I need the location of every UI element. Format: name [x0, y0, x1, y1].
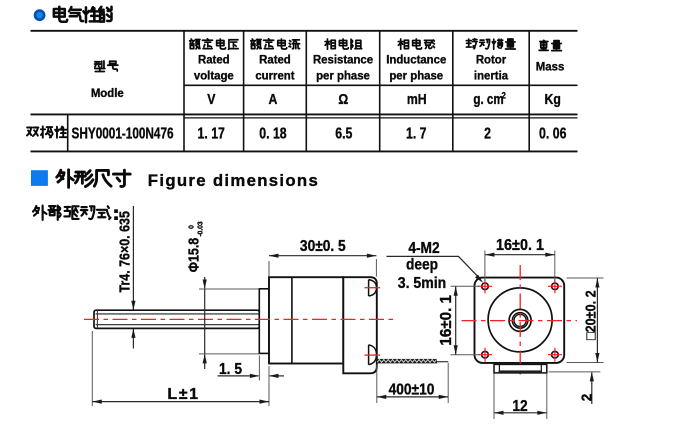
svg-text:□20±0. 2: □20±0. 2	[581, 290, 598, 340]
svg-text:16±0. 1: 16±0. 1	[496, 236, 544, 254]
svg-text:mH: mH	[407, 91, 427, 107]
svg-text:Figure dimensions: Figure dimensions	[148, 171, 319, 190]
svg-text:current: current	[255, 69, 294, 82]
svg-text:2: 2	[484, 125, 491, 143]
svg-text:Resistance: Resistance	[313, 53, 374, 66]
svg-text:6.5: 6.5	[335, 125, 352, 143]
svg-text:400±10: 400±10	[389, 380, 435, 398]
svg-text:Modle: Modle	[91, 87, 124, 100]
svg-text:1. 7: 1. 7	[406, 125, 427, 143]
svg-text:16±0. 1: 16±0. 1	[438, 295, 455, 346]
svg-text:Ω: Ω	[338, 91, 348, 107]
svg-text:0: 0	[187, 225, 195, 229]
svg-text:voltage: voltage	[194, 69, 234, 82]
svg-text:Φ15.8: Φ15.8	[186, 237, 202, 272]
svg-text:inertia: inertia	[474, 69, 509, 82]
svg-text:3. 5min: 3. 5min	[398, 274, 446, 292]
svg-text:12: 12	[512, 397, 527, 415]
svg-text:Tr4. 76×0. 635: Tr4. 76×0. 635	[117, 211, 133, 293]
svg-text:Mass: Mass	[536, 60, 565, 73]
svg-text:Rated: Rated	[198, 53, 230, 66]
svg-text:Inductance: Inductance	[386, 53, 447, 66]
svg-text:-0.03: -0.03	[196, 221, 204, 236]
svg-text:SHY0001-100N476: SHY0001-100N476	[72, 125, 174, 142]
svg-text:per phase: per phase	[389, 69, 443, 82]
svg-text:A: A	[269, 91, 278, 107]
svg-text:deep: deep	[406, 256, 438, 274]
svg-text:0. 06: 0. 06	[539, 125, 566, 143]
svg-text:Rated: Rated	[259, 53, 291, 66]
svg-text:4-M2: 4-M2	[408, 239, 439, 257]
svg-text:2: 2	[579, 394, 596, 402]
svg-text:V: V	[207, 91, 216, 107]
svg-text:L±1: L±1	[167, 386, 199, 403]
svg-text:Rotor: Rotor	[476, 53, 507, 66]
svg-text:1. 17: 1. 17	[198, 125, 225, 143]
svg-text:Kg: Kg	[545, 91, 561, 107]
svg-text:g. cm: g. cm	[473, 91, 503, 108]
svg-text:per phase: per phase	[316, 69, 370, 82]
svg-text:2: 2	[502, 90, 507, 101]
svg-text:0. 18: 0. 18	[259, 125, 286, 143]
svg-text:30±0. 5: 30±0. 5	[300, 237, 346, 255]
